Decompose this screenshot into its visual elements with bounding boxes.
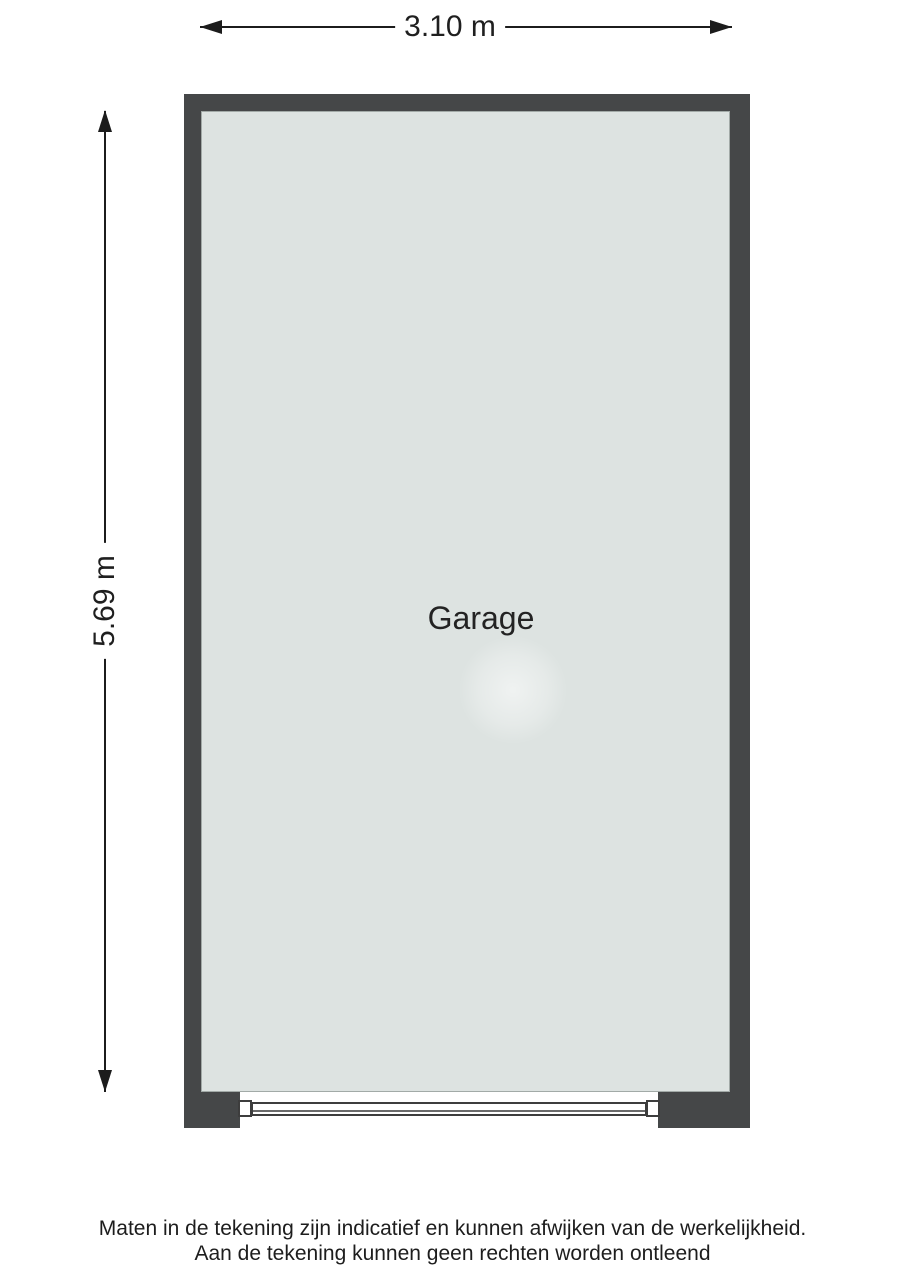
wall-stub-bottom-left <box>184 1092 240 1128</box>
garage-door-midline <box>253 1110 645 1112</box>
wall-left <box>184 94 201 1128</box>
wall-right <box>730 94 750 1128</box>
room-label: Garage <box>428 602 535 634</box>
wall-stub-bottom-right <box>658 1092 750 1128</box>
arrowhead-right-icon <box>710 20 732 34</box>
disclaimer-line-1: Maten in de tekening zijn indicatief en … <box>0 1216 905 1241</box>
disclaimer-line-2: Aan de tekening kunnen geen rechten word… <box>0 1241 905 1266</box>
arrowhead-up-icon <box>98 110 112 132</box>
width-dimension-label: 3.10 m <box>395 10 505 44</box>
garage-door-cap-left <box>238 1100 252 1117</box>
height-dimension-label: 5.69 m <box>88 543 122 659</box>
arrowhead-left-icon <box>200 20 222 34</box>
floorplan-canvas: 3.10 m 5.69 m Garage Maten in de tekenin… <box>0 0 905 1280</box>
garage-door-cap-right <box>646 1100 660 1117</box>
arrowhead-down-icon <box>98 1070 112 1092</box>
wall-top <box>184 94 750 111</box>
garage-door <box>251 1102 647 1116</box>
disclaimer: Maten in de tekening zijn indicatief en … <box>0 1216 905 1266</box>
